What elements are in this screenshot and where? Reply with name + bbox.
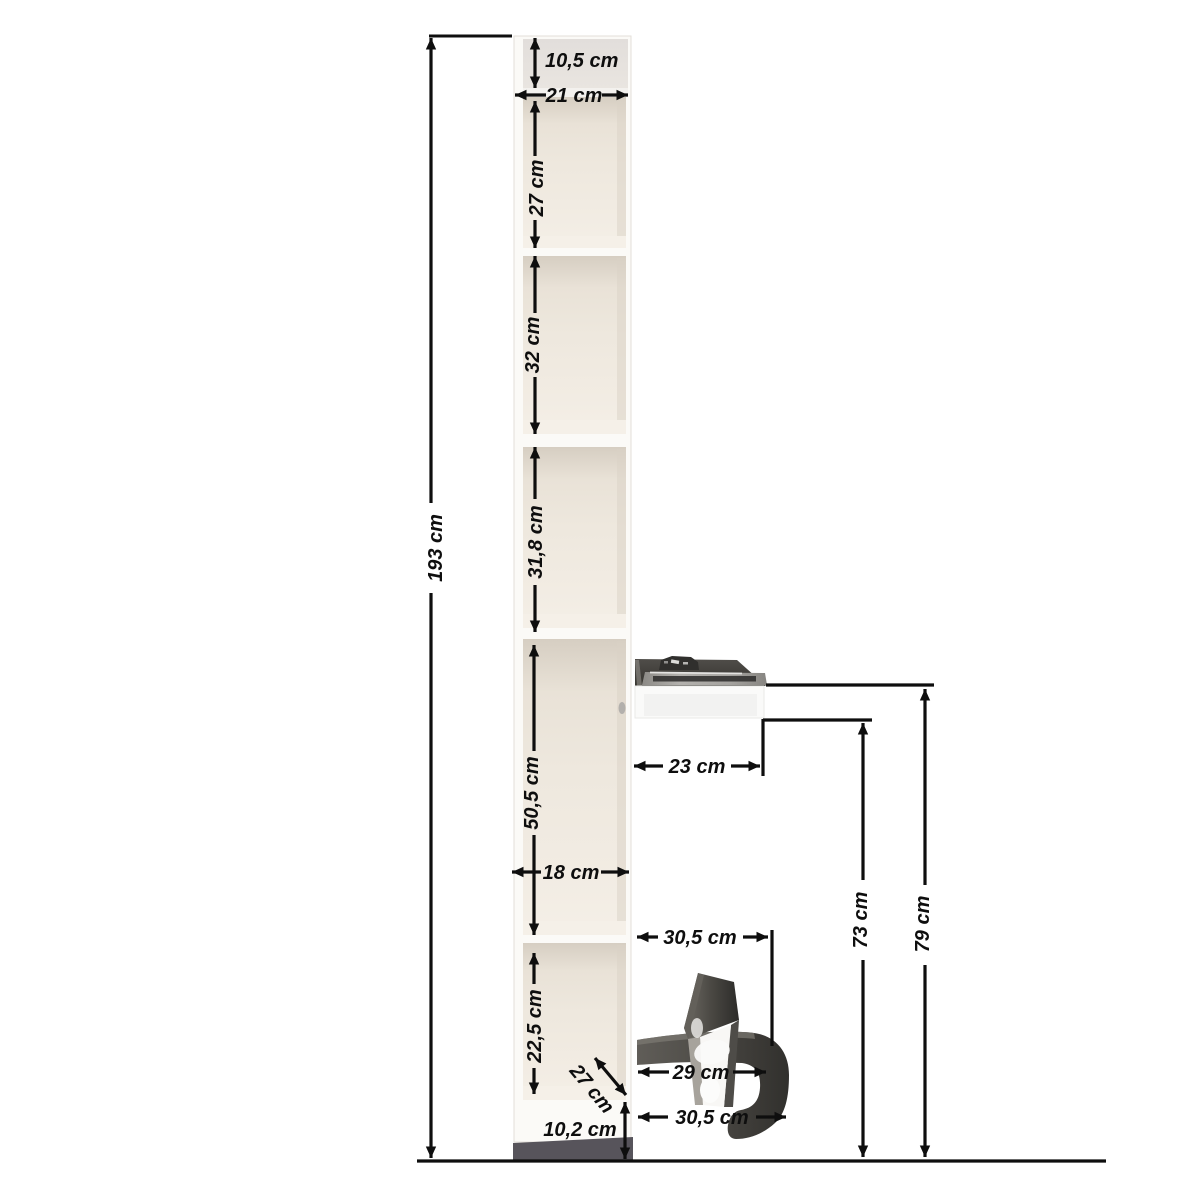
svg-text:21 cm: 21 cm: [545, 85, 603, 107]
svg-text:32 cm: 32 cm: [522, 317, 544, 374]
svg-text:31,8 cm: 31,8 cm: [525, 505, 547, 578]
svg-text:10,5 cm: 10,5 cm: [545, 50, 618, 72]
svg-text:193 cm: 193 cm: [425, 514, 447, 582]
svg-text:22,5 cm: 22,5 cm: [524, 989, 546, 1063]
svg-text:10,2 cm: 10,2 cm: [543, 1119, 616, 1141]
svg-text:79 cm: 79 cm: [912, 896, 934, 953]
svg-text:23 cm: 23 cm: [668, 756, 726, 778]
svg-text:30,5 cm: 30,5 cm: [675, 1107, 748, 1129]
svg-text:30,5 cm: 30,5 cm: [663, 927, 736, 949]
svg-text:18 cm: 18 cm: [543, 862, 600, 884]
svg-text:50,5 cm: 50,5 cm: [521, 756, 543, 829]
svg-text:27 cm: 27 cm: [526, 160, 548, 218]
svg-text:29 cm: 29 cm: [672, 1062, 730, 1084]
svg-text:73 cm: 73 cm: [850, 892, 872, 949]
